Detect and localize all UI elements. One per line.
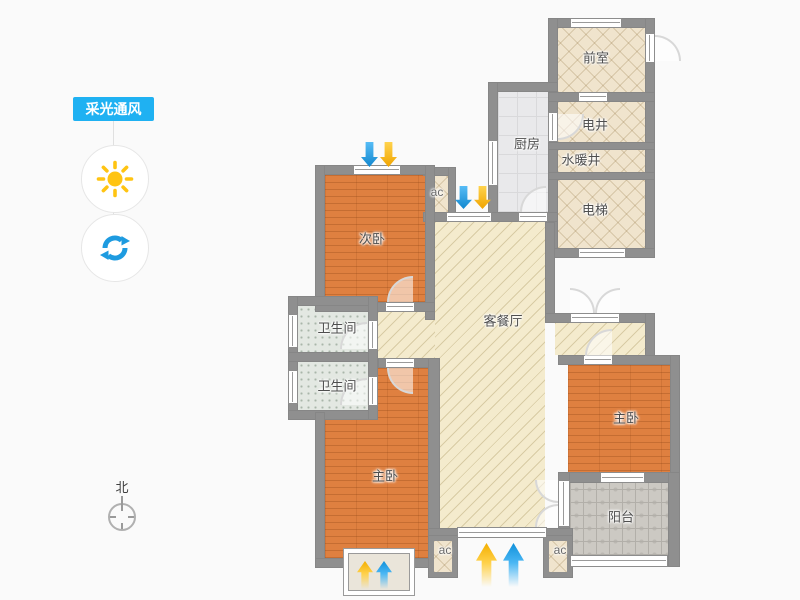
- door-sill: [583, 355, 613, 365]
- floorplan-viewer: 采光通风 北: [0, 0, 800, 600]
- refresh-icon: [97, 230, 133, 266]
- ventilation-button[interactable]: [81, 214, 149, 282]
- wall: [288, 296, 378, 306]
- window: [288, 370, 298, 404]
- door-sill: [645, 33, 655, 63]
- wall: [545, 222, 555, 322]
- door-sill: [558, 480, 570, 527]
- door-sill: [385, 358, 415, 368]
- label-weishengjian-1: 卫生间: [317, 318, 356, 337]
- window: [353, 165, 401, 175]
- label-weishengjian-2: 卫生间: [317, 376, 356, 395]
- label-ciwo: 次卧: [359, 229, 385, 248]
- wall: [288, 410, 378, 420]
- window: [288, 314, 298, 348]
- airflow-arrow-up-blue: [503, 543, 524, 587]
- door-arc-entry-right: [595, 288, 620, 313]
- daylight-button[interactable]: [81, 145, 149, 213]
- mode-badge-label: 采光通风: [86, 99, 142, 119]
- label-shuinuanjing: 水暖井: [561, 150, 600, 169]
- label-yangtai: 阳台: [608, 507, 634, 526]
- wall: [670, 355, 680, 485]
- compass-north: 北: [100, 478, 144, 536]
- window: [457, 527, 547, 538]
- door-arc-qianshi: [655, 35, 681, 61]
- door-sill: [518, 212, 548, 222]
- window: [488, 140, 498, 186]
- wall: [548, 172, 655, 180]
- label-ac-2: ac: [439, 543, 452, 557]
- label-zhuwo-left: 主卧: [372, 466, 398, 485]
- wall: [315, 412, 325, 568]
- light-arrow-up-yellow: [476, 543, 497, 587]
- mode-badge: 采光通风: [73, 97, 154, 121]
- door-sill: [368, 320, 378, 350]
- label-kecanting: 客餐厅: [483, 311, 522, 330]
- wall: [558, 355, 680, 365]
- light-arrow-down-yellow: [380, 142, 397, 167]
- door-sill: [368, 376, 378, 406]
- label-chufang: 厨房: [514, 134, 540, 153]
- wall: [668, 472, 680, 567]
- label-dianti: 电梯: [582, 200, 608, 219]
- door-arc-entry-left: [570, 288, 595, 313]
- airflow-arrow-down-blue: [455, 186, 472, 209]
- room-living-floor: [435, 222, 545, 528]
- window: [578, 248, 626, 258]
- window: [570, 555, 668, 567]
- window: [570, 18, 622, 28]
- label-zhuwo-right: 主卧: [613, 408, 639, 427]
- wall: [288, 352, 378, 362]
- label-qianshi: 前室: [583, 48, 609, 67]
- label-ac-1: ac: [431, 185, 444, 199]
- wall: [488, 82, 558, 92]
- sun-icon: [95, 159, 135, 199]
- door-sill: [385, 302, 415, 312]
- window: [600, 472, 645, 483]
- door-sill: [548, 112, 558, 142]
- door-sill-entry: [570, 313, 620, 323]
- north-label-glyph: 北: [115, 480, 128, 495]
- window: [578, 92, 608, 102]
- label-ac-3: ac: [554, 543, 567, 557]
- airflow-arrow-down-blue: [361, 142, 378, 167]
- window: [446, 212, 492, 222]
- label-dianjing: 电井: [582, 115, 608, 134]
- wall: [315, 165, 325, 312]
